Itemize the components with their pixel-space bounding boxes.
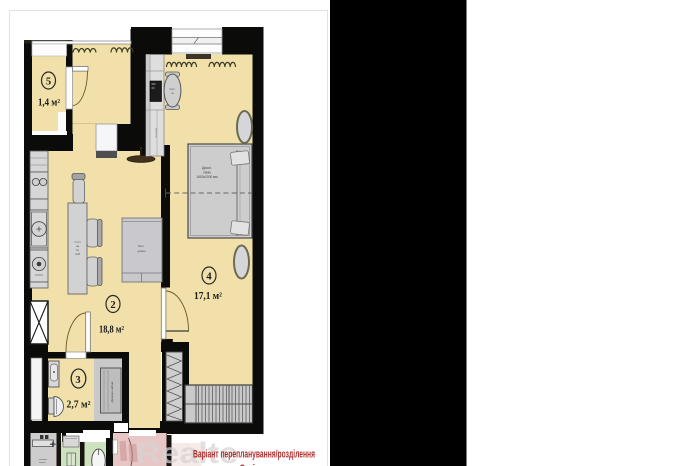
- svg-text:5: 5: [46, 77, 51, 88]
- svg-text:2: 2: [110, 300, 115, 311]
- svg-text:ліжко: ліжко: [203, 171, 211, 175]
- svg-text:3: 3: [75, 375, 80, 386]
- svg-text:1,4 м²: 1,4 м²: [38, 98, 60, 109]
- svg-text:17,1 м²: 17,1 м²: [194, 291, 222, 302]
- svg-text:полиця: полиця: [154, 128, 158, 138]
- svg-text:1600х2000 мм: 1600х2000 мм: [196, 175, 217, 179]
- svg-text:Двосп.: Двосп.: [202, 166, 212, 170]
- svg-text:4: 4: [206, 272, 212, 283]
- svg-text:2,7 м²: 2,7 м²: [67, 400, 91, 411]
- svg-text:18,8 м²: 18,8 м²: [99, 325, 124, 336]
- svg-text:Вел.: Вел.: [138, 244, 144, 248]
- svg-text:Варіант перепланування/розділе: Варіант перепланування/розділення: [193, 449, 315, 461]
- svg-text:ло: ло: [171, 91, 175, 95]
- svg-text:осіб: осіб: [75, 252, 81, 256]
- svg-text:диван: диван: [137, 249, 146, 253]
- svg-text:Душова кабіна: Душова кабіна: [110, 381, 114, 402]
